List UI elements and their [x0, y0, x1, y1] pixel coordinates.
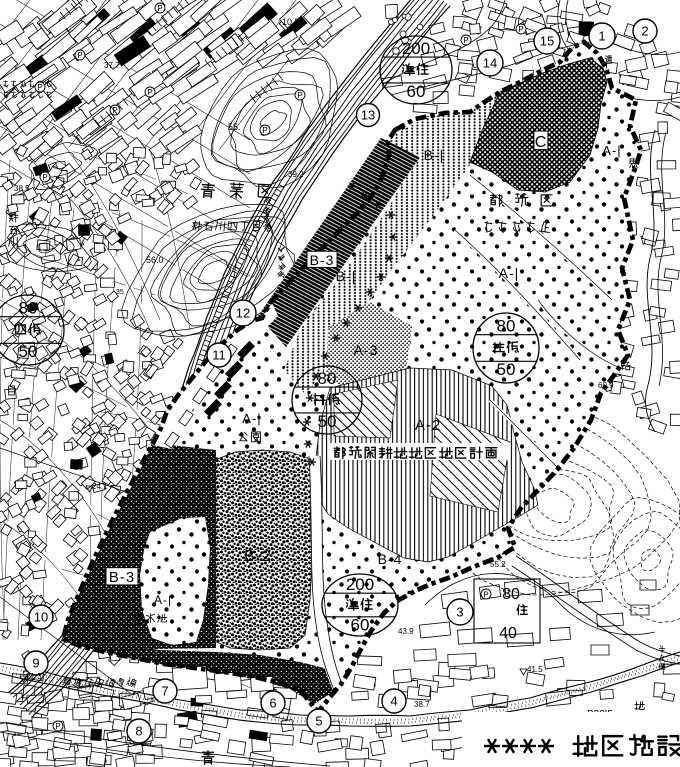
- svg-text:3: 3: [456, 605, 463, 620]
- svg-text:200: 200: [402, 39, 430, 58]
- svg-text:80: 80: [19, 299, 38, 318]
- svg-text:80: 80: [318, 369, 337, 388]
- svg-text:40: 40: [499, 625, 517, 642]
- svg-text:200: 200: [346, 575, 374, 594]
- svg-text:80: 80: [502, 586, 520, 603]
- svg-text:P: P: [262, 126, 267, 135]
- svg-text:24.1: 24.1: [92, 482, 108, 491]
- svg-text:38.7: 38.7: [414, 700, 430, 709]
- svg-text:1: 1: [598, 29, 605, 44]
- svg-text:P: P: [42, 173, 47, 182]
- svg-text:A-|: A-|: [154, 593, 172, 607]
- svg-text:80: 80: [497, 317, 516, 336]
- svg-text:A-2: A-2: [415, 417, 441, 434]
- svg-text:P: P: [483, 591, 488, 600]
- svg-text:P: P: [297, 91, 302, 100]
- svg-text:21.3: 21.3: [26, 672, 42, 681]
- svg-text:9: 9: [32, 656, 39, 671]
- svg-text:38.5: 38.5: [14, 184, 30, 193]
- svg-text:43.9: 43.9: [398, 627, 414, 636]
- svg-text:37.7: 37.7: [104, 61, 120, 70]
- svg-text:B-2: B-2: [244, 548, 272, 565]
- svg-text:B-|: B-|: [424, 147, 445, 163]
- svg-text:13: 13: [361, 108, 375, 123]
- svg-text:B-|: B-|: [336, 268, 357, 284]
- svg-text:P: P: [157, 4, 162, 13]
- svg-text:50: 50: [318, 412, 337, 431]
- svg-text:41.5: 41.5: [527, 665, 543, 674]
- svg-text:A-3: A-3: [354, 342, 379, 358]
- svg-text:60: 60: [407, 82, 426, 101]
- svg-text:12: 12: [236, 306, 250, 321]
- svg-text:50: 50: [497, 360, 516, 379]
- svg-text:P: P: [77, 51, 82, 60]
- svg-text:A-|: A-|: [242, 411, 261, 426]
- svg-text:60.9: 60.9: [598, 381, 614, 390]
- svg-text:P: P: [463, 36, 468, 45]
- svg-text:P: P: [518, 25, 523, 34]
- svg-text:P: P: [147, 88, 152, 97]
- svg-text:60: 60: [351, 616, 370, 635]
- svg-text:5: 5: [315, 714, 322, 729]
- svg-text:C: C: [535, 134, 548, 151]
- svg-text:B-4: B-4: [378, 551, 403, 567]
- svg-text:55.: 55.: [228, 122, 241, 132]
- svg-text:50: 50: [19, 342, 38, 361]
- svg-text:6: 6: [269, 696, 276, 711]
- svg-text:55.2: 55.2: [490, 560, 506, 569]
- svg-text:P: P: [37, 83, 42, 92]
- svg-text:35: 35: [116, 289, 124, 296]
- svg-text:11: 11: [212, 348, 226, 363]
- svg-text:10.5: 10.5: [282, 17, 300, 27]
- svg-text:B-3: B-3: [310, 252, 335, 268]
- svg-text:10: 10: [34, 610, 48, 625]
- svg-text:14: 14: [483, 56, 497, 71]
- svg-text:A-|: A-|: [602, 143, 621, 158]
- svg-text:56.0: 56.0: [146, 255, 164, 265]
- svg-text:B-3: B-3: [109, 569, 135, 586]
- svg-text:7: 7: [161, 684, 168, 699]
- svg-text:15: 15: [540, 34, 554, 49]
- svg-text:A-|: A-|: [499, 265, 520, 281]
- svg-text:P: P: [55, 722, 60, 731]
- svg-text:8: 8: [135, 724, 142, 739]
- svg-text:39.2: 39.2: [288, 170, 304, 179]
- svg-text:4: 4: [390, 694, 397, 709]
- svg-text:2: 2: [641, 24, 648, 39]
